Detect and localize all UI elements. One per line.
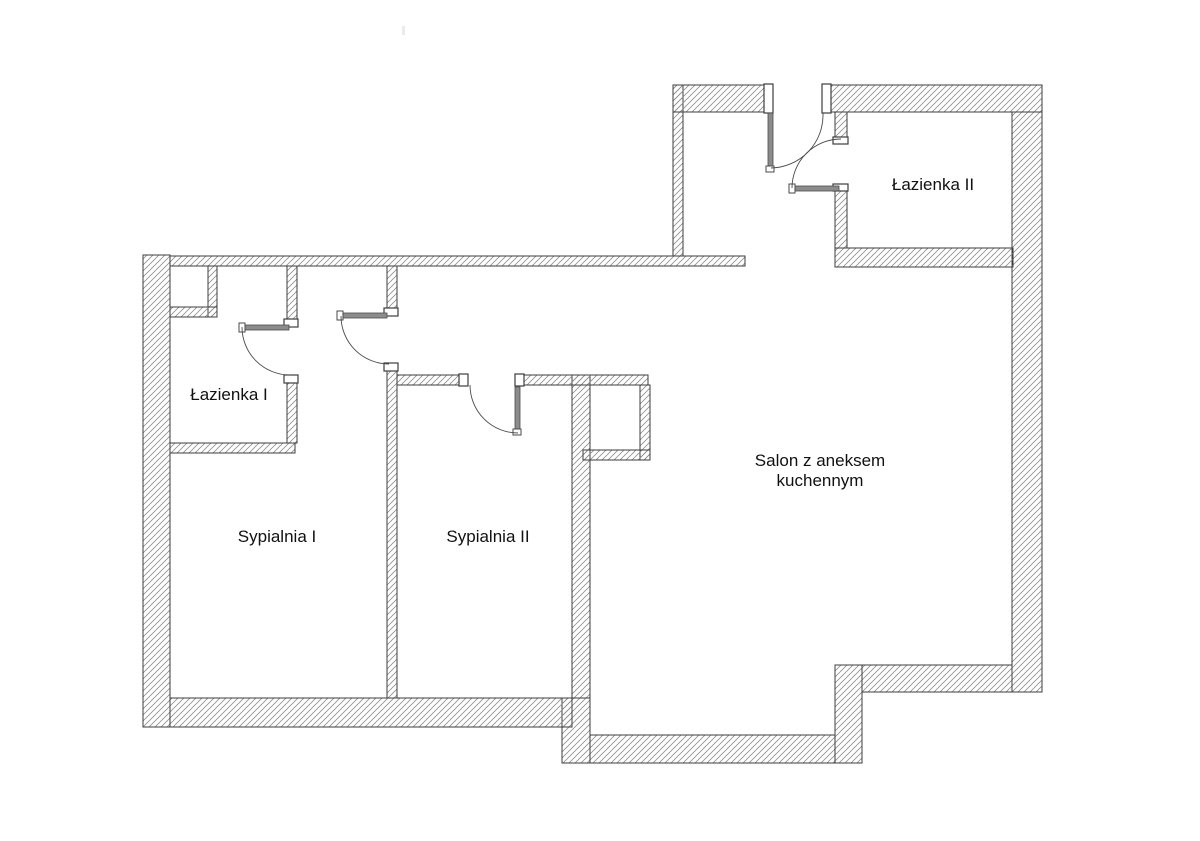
wall-exterior-top-left-of-entrance	[673, 85, 768, 112]
sypialnia2-door-swing-arc	[470, 385, 518, 433]
wall-salon-shaft-bottom	[583, 450, 650, 460]
wall-exterior-right	[1012, 112, 1042, 692]
entrance-door-jamb-right	[822, 84, 831, 113]
room-label-salon-line1: Salon z aneksem	[755, 451, 885, 470]
sypialnia2-door-leaf-cap	[513, 429, 521, 435]
lazienka1-door-jamb-bottom	[284, 375, 298, 383]
wall-exterior-step-block	[835, 665, 862, 763]
wall-salon-shaft-right	[640, 385, 650, 460]
sypialnia2-door-jamb-left	[459, 374, 468, 386]
wall-exterior-bottom-bedrooms	[170, 698, 572, 727]
wall-exterior-bottom-right	[862, 665, 1012, 692]
sypialnia1-door-leaf-cap	[337, 311, 343, 320]
sypialnia1-door-swing-arc	[341, 316, 389, 364]
wall-exterior-bottom-salon	[590, 735, 835, 763]
sypialnia1-door	[337, 308, 398, 371]
lazienka2-door	[789, 137, 848, 193]
wall-exterior-top-right-of-entrance	[823, 85, 1042, 112]
stray-mark	[402, 26, 405, 35]
wall-corridor-bottom-left	[397, 375, 459, 385]
wall-sypialnia1-door-stub	[387, 266, 397, 308]
lazienka1-door	[239, 319, 298, 383]
sypialnia2-door-jamb-right	[515, 374, 524, 386]
room-label-salon: Salon z aneksem kuchennym	[755, 451, 885, 490]
wall-lazienka1-shaft-bottom	[170, 307, 217, 317]
wall-lazienka1-right-lower	[287, 383, 297, 443]
wall-lazienka2-left-upper	[835, 112, 847, 137]
entrance-door-leaf	[768, 113, 773, 168]
room-label-lazienka2: Łazienka II	[892, 175, 974, 194]
room-label-sypialnia1: Sypialnia I	[238, 527, 316, 546]
lazienka1-door-leaf	[243, 325, 289, 330]
wall-lazienka1-bottom	[170, 443, 295, 453]
floor-plan: Łazienka I Sypialnia I Sypialnia II Łazi…	[0, 0, 1200, 841]
sypialnia1-door-leaf	[341, 313, 387, 318]
wall-lazienka2-bottom	[835, 248, 1013, 267]
sypialnia2-door	[459, 374, 524, 435]
entrance-door-swing-arc	[771, 113, 823, 168]
wall-lazienka2-left-lower	[835, 191, 847, 248]
room-label-salon-line2: kuchennym	[777, 471, 864, 490]
wall-corridor-bottom-right	[524, 375, 648, 385]
wall-lazienka1-right-upper	[287, 266, 297, 319]
lazienka1-door-swing-arc	[242, 327, 290, 375]
lazienka2-door-jamb-top	[833, 137, 848, 144]
wall-corridor-top	[170, 256, 745, 266]
lazienka2-door-swing-arc	[792, 139, 841, 188]
wall-sypialnia2-salon	[572, 375, 590, 698]
entrance-door-leaf-cap	[766, 166, 774, 172]
lazienka2-door-leaf	[792, 186, 839, 191]
wall-sypialnia1-sypialnia2	[387, 371, 397, 698]
entrance-door-jamb-left	[764, 84, 773, 113]
room-label-lazienka1: Łazienka I	[190, 385, 268, 404]
entrance-door	[764, 84, 831, 172]
sypialnia2-door-leaf	[515, 387, 520, 431]
room-label-sypialnia2: Sypialnia II	[446, 527, 529, 546]
wall-exterior-left	[143, 255, 170, 727]
